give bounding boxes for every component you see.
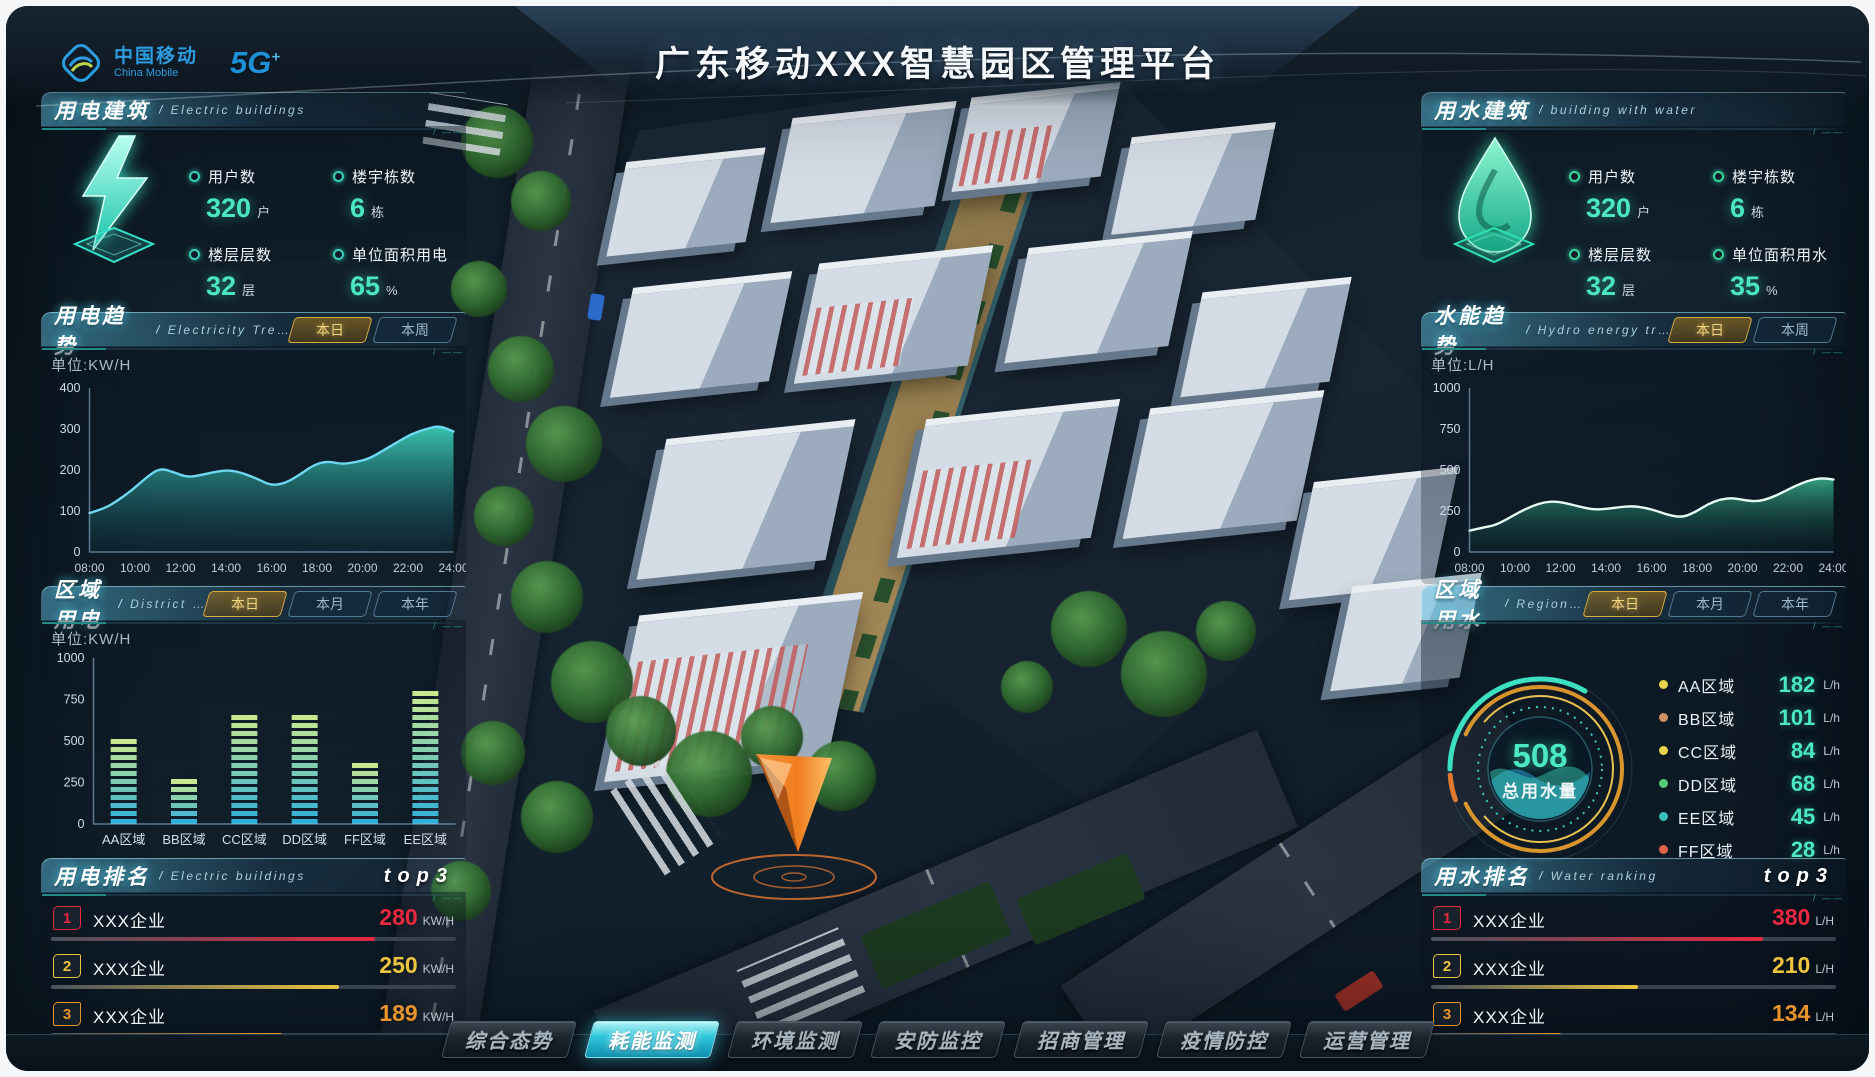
lightning-icon xyxy=(55,132,173,268)
legend-item: AA区域182L/h xyxy=(1659,668,1840,701)
panel-title: 用电排名 xyxy=(54,861,150,891)
bullet-icon xyxy=(1569,171,1580,182)
svg-text:10:00: 10:00 xyxy=(1500,561,1530,575)
svg-text:1000: 1000 xyxy=(57,651,85,665)
bullet-icon xyxy=(1713,249,1724,260)
rank-name: XXX企业 xyxy=(93,907,166,932)
rank-row: 2 XXX企业 250KW/H xyxy=(51,952,456,1002)
svg-text:22:00: 22:00 xyxy=(1773,561,1803,575)
stat-unit-area-electricity: 单位面积用电 65% xyxy=(333,244,485,302)
svg-text:24:00: 24:00 xyxy=(1818,561,1846,575)
svg-text:18:00: 18:00 xyxy=(1682,561,1712,575)
rank-badge: 1 xyxy=(1433,906,1461,930)
tree xyxy=(488,336,554,402)
rank-badge: 3 xyxy=(53,1002,81,1026)
svg-text:750: 750 xyxy=(1440,422,1461,436)
svg-text:EE区域: EE区域 xyxy=(404,832,447,847)
tab-this-year[interactable]: 本年 xyxy=(372,591,457,617)
rank-bar xyxy=(1431,985,1836,989)
rank-name: XXX企业 xyxy=(1473,907,1546,932)
nav-tab-operations-management[interactable]: 运营管理 xyxy=(1299,1021,1435,1058)
svg-text:0: 0 xyxy=(1454,545,1461,559)
panel-electric-trend: 用电趋势 Electricity Trend 本日 本周 单位:KW/H 010… xyxy=(41,312,466,584)
bullet-icon xyxy=(189,171,200,182)
dashboard-frame: 中国移动 China Mobile 5G+ 广东移动XXX智慧园区管理平台 用电… xyxy=(6,6,1869,1071)
panel-title: 用水建筑 xyxy=(1434,95,1530,125)
tab-today[interactable]: 本日 xyxy=(287,317,372,343)
total-water-gauge: 508 总用水量 xyxy=(1435,664,1645,874)
svg-text:18:00: 18:00 xyxy=(302,561,332,575)
svg-text:500: 500 xyxy=(1440,463,1461,477)
svg-text:250: 250 xyxy=(64,776,85,790)
fiveg-logo: 5G+ xyxy=(230,45,280,81)
china-mobile-logo: 中国移动 China Mobile 5G+ xyxy=(58,40,280,86)
svg-text:300: 300 xyxy=(60,422,81,436)
nav-tab-overview[interactable]: 综合态势 xyxy=(441,1021,577,1058)
rank-name: XXX企业 xyxy=(93,955,166,980)
building-block xyxy=(1111,122,1276,235)
water-region-legend: AA区域182L/h BB区域101L/h CC区域84L/h DD区域68L/… xyxy=(1659,668,1840,866)
tab-today[interactable]: 本日 xyxy=(1582,591,1667,617)
svg-text:0: 0 xyxy=(78,817,85,831)
svg-text:16:00: 16:00 xyxy=(1636,561,1666,575)
building-block xyxy=(897,399,1120,558)
svg-text:100: 100 xyxy=(60,504,81,518)
nav-tab-security-monitoring[interactable]: 安防监控 xyxy=(870,1021,1006,1058)
stat-users: 用户数 320户 xyxy=(189,166,329,224)
tree xyxy=(521,781,593,853)
svg-text:12:00: 12:00 xyxy=(1545,561,1575,575)
svg-text:12:00: 12:00 xyxy=(165,561,195,575)
district-electricity-chart: 02505007501000AA区域BB区域CC区域DD区域FF区域EE区域 xyxy=(41,648,466,858)
tab-this-week[interactable]: 本周 xyxy=(1752,317,1837,343)
top3-label: top3 xyxy=(384,865,454,888)
svg-text:1000: 1000 xyxy=(1433,381,1461,395)
tree xyxy=(461,721,525,785)
tab-this-week[interactable]: 本周 xyxy=(372,317,457,343)
building-block xyxy=(770,101,956,223)
building-block xyxy=(794,245,994,384)
tree xyxy=(1051,591,1127,667)
rank-name: XXX企业 xyxy=(1473,1003,1546,1028)
top3-label: top3 xyxy=(1764,865,1834,888)
building-block xyxy=(951,82,1120,192)
svg-text:DD区域: DD区域 xyxy=(282,832,327,847)
svg-text:0: 0 xyxy=(74,545,81,559)
panel-water-trend: 水能趋势 Hydro energy trends 本日 本周 单位:L/H 02… xyxy=(1421,312,1846,584)
legend-item: EE区域45L/h xyxy=(1659,800,1840,833)
panel-subtitle: Water ranking xyxy=(1539,869,1658,883)
stat-users: 用户数 320户 xyxy=(1569,166,1709,224)
tab-today[interactable]: 本日 xyxy=(1667,317,1752,343)
panel-water-rank: 用水排名 Water ranking top3 1 XXX企业 380L/H 2… xyxy=(1421,858,1846,1040)
panel-subtitle: Electric buildings xyxy=(159,869,306,883)
svg-text:10:00: 10:00 xyxy=(120,561,150,575)
bullet-icon xyxy=(1569,249,1580,260)
logo-text-en: China Mobile xyxy=(114,67,198,79)
nav-tab-environment-monitoring[interactable]: 环境监测 xyxy=(727,1021,863,1058)
svg-text:FF区域: FF区域 xyxy=(344,832,386,847)
panel-subtitle: Hydro energy trends xyxy=(1526,323,1671,337)
panel-regional-water: 区域用水 Regional water 本日 本月 本年 508 总用水量 AA… xyxy=(1421,586,1846,858)
rank-row: 2 XXX企业 210L/H xyxy=(1431,952,1836,1002)
svg-text:AA区域: AA区域 xyxy=(102,832,145,847)
bullet-icon xyxy=(189,249,200,260)
nav-tab-epidemic-prevention[interactable]: 疫情防控 xyxy=(1156,1021,1292,1058)
svg-text:08:00: 08:00 xyxy=(1454,561,1484,575)
electricity-trend-chart: 010020030040008:0010:0012:0014:0016:0018… xyxy=(41,376,466,582)
building-block xyxy=(610,271,793,398)
bullet-icon xyxy=(333,171,344,182)
svg-text:250: 250 xyxy=(1440,504,1461,518)
legend-item: CC区域84L/h xyxy=(1659,734,1840,767)
svg-text:20:00: 20:00 xyxy=(1727,561,1757,575)
water-drop-icon xyxy=(1435,132,1553,268)
panel-title: 用电建筑 xyxy=(54,95,150,125)
tab-this-month[interactable]: 本月 xyxy=(1667,591,1752,617)
tab-today[interactable]: 本日 xyxy=(202,591,287,617)
building-block xyxy=(606,147,765,256)
panel-subtitle: Regional water xyxy=(1505,597,1586,611)
rank-row: 1 XXX企业 380L/H xyxy=(1431,904,1836,954)
rank-badge: 2 xyxy=(1433,954,1461,978)
building-block xyxy=(637,419,856,580)
building-block xyxy=(1123,390,1325,539)
rank-name: XXX企业 xyxy=(1473,955,1546,980)
smart-park-dashboard: 中国移动 China Mobile 5G+ 广东移动XXX智慧园区管理平台 用电… xyxy=(0,0,1875,1077)
svg-text:500: 500 xyxy=(64,734,85,748)
svg-text:20:00: 20:00 xyxy=(347,561,377,575)
china-mobile-logo-icon xyxy=(58,40,104,86)
location-marker-icon[interactable] xyxy=(748,748,840,860)
bottom-nav: 综合态势 耗能监测 环境监测 安防监控 招商管理 疫情防控 运营管理 xyxy=(446,1021,1430,1058)
rank-bar xyxy=(51,937,456,941)
stat-unit-area-water: 单位面积用水 35% xyxy=(1713,244,1865,302)
tree xyxy=(526,406,602,482)
rank-row: 1 XXX企业 280KW/H xyxy=(51,904,456,954)
svg-text:14:00: 14:00 xyxy=(1591,561,1621,575)
bullet-icon xyxy=(1713,171,1724,182)
tree xyxy=(1001,661,1053,713)
legend-item: DD区域68L/h xyxy=(1659,767,1840,800)
marker-ripple xyxy=(706,851,882,903)
building-block xyxy=(1004,231,1193,363)
tree xyxy=(1121,631,1207,717)
stat-floors: 楼层层数 32层 xyxy=(1569,244,1709,302)
svg-text:CC区域: CC区域 xyxy=(222,832,267,847)
tree xyxy=(1196,601,1256,661)
panel-subtitle: building with water xyxy=(1539,103,1697,117)
tab-this-year[interactable]: 本年 xyxy=(1752,591,1837,617)
panel-subtitle: Electric buildings xyxy=(159,103,306,117)
rank-badge: 3 xyxy=(1433,1002,1461,1026)
unit-label: 单位:L/H xyxy=(1431,354,1495,375)
unit-label: 单位:KW/H xyxy=(51,354,131,375)
panel-title: 用水排名 xyxy=(1434,861,1530,891)
rank-bar xyxy=(51,985,456,989)
svg-text:22:00: 22:00 xyxy=(393,561,423,575)
water-trend-chart: 0250500750100008:0010:0012:0014:0016:001… xyxy=(1421,376,1846,582)
rank-badge: 1 xyxy=(53,906,81,930)
vehicle xyxy=(1334,970,1383,1012)
nav-tab-investment-management[interactable]: 招商管理 xyxy=(1013,1021,1149,1058)
tab-this-month[interactable]: 本月 xyxy=(287,591,372,617)
building-block xyxy=(1180,277,1351,398)
rank-name: XXX企业 xyxy=(93,1003,166,1028)
panel-electric-building: 用电建筑 Electric buildings 用户数 320户 楼宇栋数 6栋 xyxy=(41,92,466,260)
stat-buildings: 楼宇栋数 6栋 xyxy=(1713,166,1865,224)
svg-text:16:00: 16:00 xyxy=(256,561,286,575)
svg-text:BB区域: BB区域 xyxy=(162,832,205,847)
panel-subtitle: Electricity Trend xyxy=(156,323,291,337)
tree xyxy=(511,561,583,633)
bullet-icon xyxy=(333,249,344,260)
stat-floors: 楼层层数 32层 xyxy=(189,244,329,302)
svg-text:200: 200 xyxy=(60,463,81,477)
svg-text:08:00: 08:00 xyxy=(74,561,104,575)
stat-buildings: 楼宇栋数 6栋 xyxy=(333,166,485,224)
panel-water-building: 用水建筑 building with water 用户数 320户 楼宇栋数 6 xyxy=(1421,92,1846,260)
panel-subtitle: District electricity xyxy=(118,597,206,611)
svg-text:14:00: 14:00 xyxy=(211,561,241,575)
panel-electric-rank: 用电排名 Electric buildings top3 1 XXX企业 280… xyxy=(41,858,466,1040)
rank-badge: 2 xyxy=(53,954,81,978)
nav-tab-energy-monitoring[interactable]: 耗能监测 xyxy=(584,1021,720,1058)
unit-label: 单位:KW/H xyxy=(51,628,131,649)
svg-text:400: 400 xyxy=(60,381,81,395)
svg-text:24:00: 24:00 xyxy=(438,561,466,575)
panel-district-electric: 区域用电 District electricity 本日 本月 本年 单位:KW… xyxy=(41,586,466,858)
logo-text-cn: 中国移动 xyxy=(114,47,198,68)
svg-text:750: 750 xyxy=(64,693,85,707)
tree xyxy=(474,486,534,546)
tree xyxy=(511,171,571,231)
legend-item: BB区域101L/h xyxy=(1659,701,1840,734)
rank-bar xyxy=(1431,937,1836,941)
